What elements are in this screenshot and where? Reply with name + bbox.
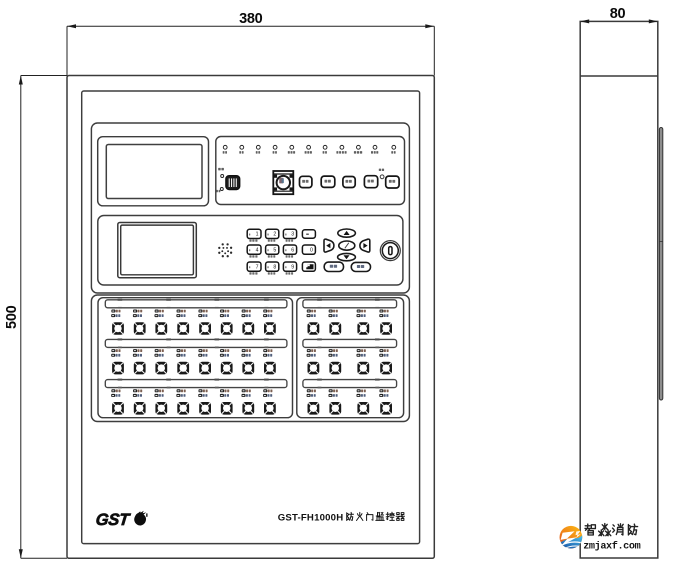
svg-text:5: 5 xyxy=(273,247,276,253)
svg-text:2: 2 xyxy=(273,232,276,238)
svg-text:GST-FH1000H: GST-FH1000H xyxy=(278,513,344,524)
svg-text:8: 8 xyxy=(273,264,276,270)
svg-text:GST: GST xyxy=(95,510,132,529)
svg-text:1: 1 xyxy=(256,232,259,238)
svg-text:7: 7 xyxy=(256,264,259,270)
svg-text:6: 6 xyxy=(291,247,294,253)
svg-text:9: 9 xyxy=(291,264,294,270)
svg-text:0: 0 xyxy=(310,247,313,253)
svg-text:80: 80 xyxy=(610,6,626,22)
svg-text:500: 500 xyxy=(4,305,20,329)
svg-text:3: 3 xyxy=(291,232,294,238)
svg-text:zmjaxf.com: zmjaxf.com xyxy=(583,540,640,552)
svg-text:4: 4 xyxy=(256,247,259,253)
svg-text:380: 380 xyxy=(239,11,263,27)
